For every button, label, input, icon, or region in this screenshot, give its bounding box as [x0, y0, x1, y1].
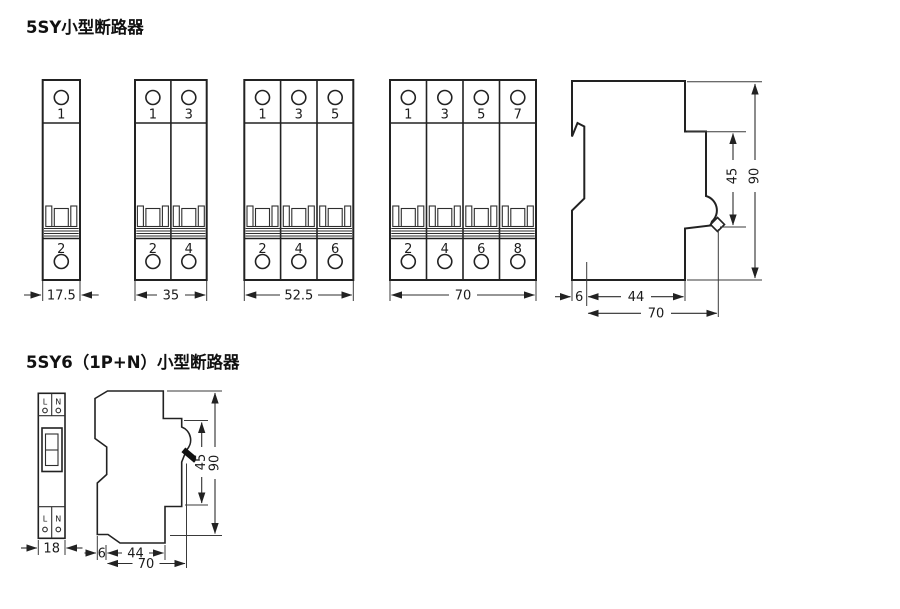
terminal-number: 7: [514, 108, 522, 123]
width-dimension-18: 18: [21, 540, 83, 557]
front-view-1-pole: 1 2 17.5: [24, 80, 99, 304]
section2-title: 5SY6（1P+N）小型断路器: [26, 352, 240, 372]
width-dimension-label: 52.5: [284, 289, 313, 304]
terminal-letter: L: [43, 515, 48, 524]
terminal-number: 1: [149, 108, 157, 123]
handle-height-label: 45: [726, 168, 741, 185]
terminal-circle: [54, 91, 68, 105]
side-view-1p-n: 45 90 6 44 70: [85, 391, 223, 572]
breaker-profile: [95, 391, 191, 543]
breaker-dimension-diagram: 5SY小型断路器 1 2 17.5: [0, 0, 900, 609]
dimension-6: 6: [85, 546, 106, 561]
dimension-45: 45: [726, 134, 741, 226]
body-depth-label: 44: [628, 290, 645, 305]
width-dimension-label: 17.5: [47, 289, 76, 304]
terminal-number: 3: [441, 108, 449, 123]
louver-lines: [246, 229, 352, 237]
height-label: 90: [208, 455, 223, 472]
terminal-number: 1: [258, 108, 266, 123]
rail-offset-label: 6: [98, 546, 106, 561]
breaker-dimension-page: 5SY小型断路器 1 2 17.5: [0, 0, 900, 609]
section1-title: 5SY小型断路器: [26, 17, 144, 37]
dimension-6: 6: [555, 290, 583, 305]
dimension-70: 70: [588, 307, 717, 322]
terminal-number: 3: [185, 108, 193, 123]
terminal-number: 3: [295, 108, 303, 123]
switch-comb: [46, 206, 77, 227]
terminal-letter: N: [55, 515, 61, 524]
total-depth-label: 70: [138, 557, 155, 572]
dimension-44: 44: [588, 290, 683, 305]
front-view-4-pole: 1 3 5 7 2 4: [390, 80, 536, 304]
front-view-2-pole: 1 3 2 4 35: [135, 80, 207, 304]
total-depth-label: 70: [648, 307, 665, 322]
switch-comb: [247, 206, 351, 227]
width-dimension-52-5: 52.5: [244, 281, 353, 304]
width-dimension-17-5: 17.5: [24, 281, 99, 304]
terminal-number: 5: [331, 108, 339, 123]
terminal-letter: L: [43, 398, 48, 407]
rail-offset-label: 6: [575, 290, 583, 305]
louver-lines: [44, 229, 79, 237]
terminal-number: 1: [404, 108, 412, 123]
width-dimension-label: 70: [455, 289, 472, 304]
terminal-number: 1: [57, 108, 65, 123]
toggle-switch: [42, 428, 62, 472]
side-view-multi-pole: 45 90 6 44 70: [555, 81, 763, 322]
dimension-70: 70: [108, 557, 186, 572]
breaker-profile: [572, 81, 717, 280]
front-view-1p-n: L N L N 18: [21, 393, 83, 556]
height-label: 90: [748, 168, 763, 185]
width-dimension-label: 35: [163, 289, 180, 304]
width-dimension-35: 35: [135, 281, 207, 304]
width-dimension-70: 70: [390, 281, 536, 304]
dimension-90: 90: [748, 84, 763, 278]
width-dimension-label: 18: [43, 542, 60, 557]
dimension-90: 90: [208, 393, 223, 534]
terminal-number: 5: [477, 108, 485, 123]
front-view-3-pole: 1 3 5 2 4 6: [244, 80, 353, 304]
terminal-letter: N: [55, 398, 61, 407]
